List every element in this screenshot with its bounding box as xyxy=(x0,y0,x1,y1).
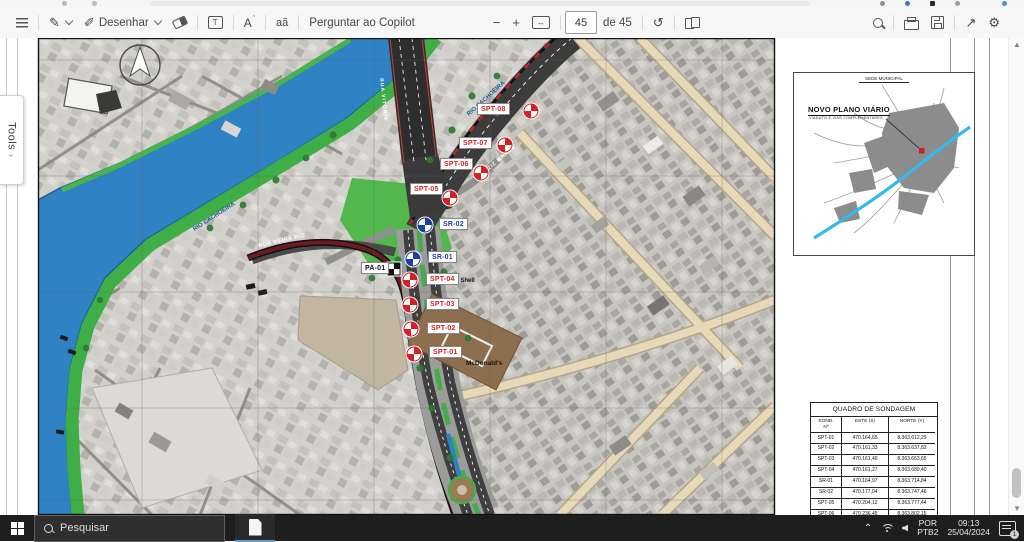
spt-01-marker xyxy=(407,347,422,362)
refresh-icon[interactable] xyxy=(92,1,97,6)
read-aloud-button[interactable]: Aˆ xyxy=(238,11,261,35)
tools-tab-label: Tools xyxy=(6,122,18,150)
pa-01-label: PA-01 xyxy=(361,262,389,274)
copilot-label: Perguntar ao Copilot xyxy=(309,17,414,29)
translate-button[interactable]: aã xyxy=(270,11,294,35)
extension-icon[interactable] xyxy=(930,1,935,6)
page-view-button[interactable] xyxy=(679,11,705,35)
spt-01-label: SPT-01 xyxy=(429,346,462,358)
divider xyxy=(954,15,955,30)
page-view-icon xyxy=(685,17,699,28)
plus-icon: + xyxy=(512,16,520,29)
page-number-input[interactable] xyxy=(565,11,597,34)
search-icon xyxy=(873,18,883,28)
divider xyxy=(38,15,39,30)
notification-center-icon[interactable]: 1 xyxy=(999,521,1016,536)
divider xyxy=(893,15,894,30)
rotate-icon: ↺ xyxy=(653,16,664,29)
taskbar: Pesquisar ⌃ PORPTB2 09:1325/04/2024 1 xyxy=(0,515,1024,541)
clock[interactable]: 09:1325/04/2024 xyxy=(947,519,990,538)
sounding-markers-layer: SPT-08SPT-07SPT-06SPT-05SR-02SR-01PA-01S… xyxy=(0,38,1008,515)
chevron-right-icon: › xyxy=(7,154,17,158)
translate-icon: aã xyxy=(276,17,288,29)
notification-badge: 1 xyxy=(1010,530,1019,539)
search-placeholder: Pesquisar xyxy=(60,522,109,534)
sr-02-marker xyxy=(418,218,433,233)
spt-06-label: SPT-06 xyxy=(440,158,473,170)
pa-01-marker xyxy=(388,263,401,276)
spt-08-marker xyxy=(524,104,539,119)
highlighter-icon: ✎ xyxy=(49,16,60,29)
spt-07-marker xyxy=(498,138,513,153)
erase-button[interactable] xyxy=(167,11,193,35)
draw-button[interactable]: ✐ Desenhar xyxy=(78,11,167,35)
profile-avatar[interactable] xyxy=(1002,1,1007,6)
fit-width-icon: ↔ xyxy=(532,16,550,29)
divider xyxy=(265,15,266,30)
spt-08-label: SPT-08 xyxy=(477,103,510,115)
fullscreen-button[interactable]: ↗ xyxy=(959,11,982,35)
spt-02-label: SPT-02 xyxy=(427,322,460,334)
read-aloud-icon: A xyxy=(244,16,252,30)
chevron-down-icon xyxy=(65,17,73,25)
speaker-icon[interactable] xyxy=(902,525,908,532)
text-box-icon: T xyxy=(208,16,223,29)
zoom-in-button[interactable]: + xyxy=(506,11,526,35)
sr-02-label: SR-02 xyxy=(439,218,468,230)
document-icon xyxy=(249,519,262,536)
sr-01-marker xyxy=(406,252,421,267)
tools-panel-tab[interactable]: Tools › xyxy=(0,95,24,185)
spt-03-marker xyxy=(403,298,418,313)
rotate-button[interactable]: ↺ xyxy=(647,11,670,35)
page-total: de 45 xyxy=(597,11,638,35)
copilot-button[interactable]: Perguntar ao Copilot xyxy=(303,11,420,35)
spt-03-label: SPT-03 xyxy=(426,298,459,310)
fullscreen-icon: ↗ xyxy=(965,16,976,29)
highlight-button[interactable]: ✎ xyxy=(43,11,78,35)
toc-button[interactable] xyxy=(10,11,34,35)
spt-04-label: SPT-04 xyxy=(426,273,459,285)
search-icon xyxy=(44,524,53,533)
settings-menu-icon[interactable] xyxy=(955,1,960,6)
print-icon xyxy=(904,20,919,30)
search-document-button[interactable] xyxy=(867,11,889,35)
favorites-icon[interactable] xyxy=(880,1,885,6)
taskbar-app-pdf[interactable] xyxy=(235,514,275,542)
spt-07-label: SPT-07 xyxy=(459,137,492,149)
print-button[interactable] xyxy=(898,11,925,35)
windows-logo-icon xyxy=(11,522,24,535)
spt-05-label: SPT-05 xyxy=(410,183,443,195)
spt-04-marker xyxy=(403,273,418,288)
minus-icon: − xyxy=(493,16,501,29)
divider xyxy=(674,15,675,30)
gear-icon: ⚙ xyxy=(988,16,1000,29)
scroll-up-icon[interactable]: ▲ xyxy=(1009,40,1024,49)
pdf-page: RIO CACHOEIRA RIO CACHOEIRA RUA BEIRA RI… xyxy=(0,38,1008,515)
taskbar-search[interactable]: Pesquisar xyxy=(34,515,225,542)
start-button[interactable] xyxy=(0,515,34,541)
eraser-icon xyxy=(171,15,187,29)
system-tray: ⌃ PORPTB2 09:1325/04/2024 1 xyxy=(864,519,1024,538)
scroll-down-icon[interactable]: ▼ xyxy=(1009,504,1024,513)
sr-01-label: SR-01 xyxy=(428,251,457,263)
toc-icon xyxy=(16,18,28,28)
settings-button[interactable]: ⚙ xyxy=(982,11,1006,35)
language-indicator[interactable]: PORPTB2 xyxy=(917,519,938,538)
spt-06-marker xyxy=(474,166,489,181)
draw-pen-icon: ✐ xyxy=(84,16,95,29)
divider xyxy=(298,15,299,30)
hidden-icons-chevron[interactable]: ⌃ xyxy=(864,523,872,534)
scrollbar-thumb[interactable] xyxy=(1012,468,1021,498)
chevron-down-icon xyxy=(153,17,161,25)
screen: { "pdf_toolbar": { "draw_label": "Desenh… xyxy=(0,0,1024,541)
divider xyxy=(560,15,561,30)
url-field[interactable] xyxy=(150,1,810,6)
back-icon[interactable] xyxy=(62,1,67,6)
fit-width-button[interactable]: ↔ xyxy=(526,11,556,35)
divider xyxy=(233,15,234,30)
save-icon xyxy=(931,16,944,29)
extension-icon[interactable] xyxy=(905,1,910,6)
scrollbar[interactable]: ▲ ▼ xyxy=(1008,38,1024,515)
wifi-icon[interactable] xyxy=(881,524,893,533)
pdf-toolbar: ✎ ✐ Desenhar T Aˆ aã Perguntar ao Copilo… xyxy=(0,7,1024,39)
zoom-out-button[interactable]: − xyxy=(487,11,507,35)
divider xyxy=(642,15,643,30)
spt-05-marker xyxy=(443,191,458,206)
draw-label: Desenhar xyxy=(99,17,149,29)
spt-02-marker xyxy=(404,322,419,337)
add-text-button[interactable]: T xyxy=(202,11,229,35)
divider xyxy=(197,15,198,30)
save-button[interactable] xyxy=(925,11,950,35)
